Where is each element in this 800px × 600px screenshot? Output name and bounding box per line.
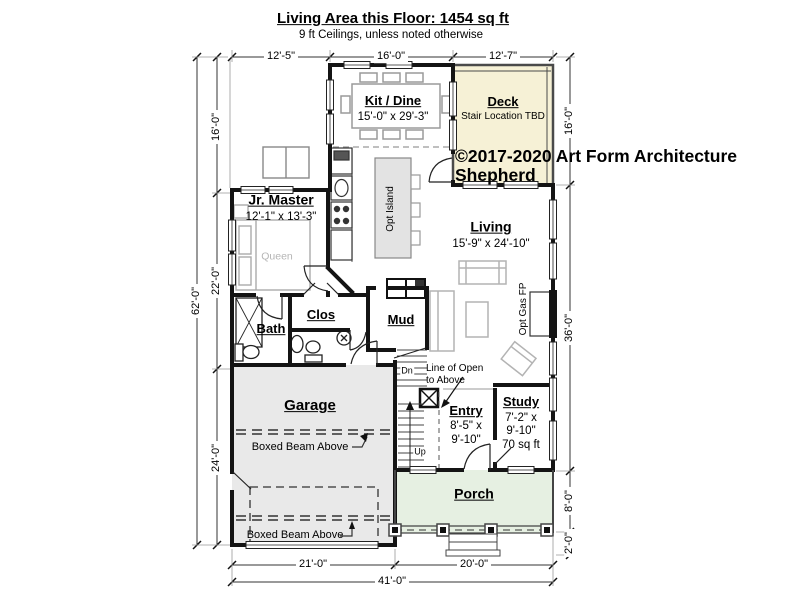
- opt-island-label: Opt Island: [386, 186, 397, 232]
- dim-top-1: 12'-5": [264, 51, 298, 63]
- queen-bed-label: Queen: [261, 251, 293, 262]
- cabinet: [331, 230, 352, 260]
- garage-entry-door: [351, 341, 377, 364]
- deck-door: [429, 158, 452, 182]
- dim-right-3: 8'-0": [564, 487, 576, 515]
- loveseat: [430, 291, 454, 351]
- toilet2-bowl: [306, 341, 320, 353]
- room-label-kit-dine: Kit / Dine: [362, 94, 424, 108]
- room-dims-entry-2: 9'-10": [451, 434, 480, 446]
- floor-plan-canvas: Living Area this Floor: 1454 sq ft 9 ft …: [0, 0, 800, 600]
- dim-left-2: 22'-0": [211, 264, 223, 298]
- room-dims-jr-master: 12'-1" x 13'-3": [246, 211, 317, 223]
- porch-steps: [449, 534, 497, 542]
- room-label-study: Study: [503, 395, 539, 409]
- fridge-top: [334, 151, 349, 160]
- fireplace: [530, 290, 557, 338]
- powder-sink: [291, 336, 303, 353]
- kitchen-fixtures: [331, 148, 420, 262]
- deck-note: Stair Location TBD: [461, 112, 545, 123]
- copyright-line2: Shepherd: [455, 166, 536, 185]
- room-dims-living: 15'-9" x 24'-10": [452, 238, 529, 250]
- stair-up-label: Up: [413, 447, 427, 456]
- powder-door: [350, 332, 366, 350]
- room-dims-study-2: 9'-10": [506, 425, 535, 437]
- room-label-garage: Garage: [284, 398, 336, 414]
- dim-bottom-overall: 41'-0": [375, 576, 409, 588]
- room-label-porch: Porch: [454, 487, 494, 502]
- garage-fill: [232, 365, 395, 545]
- ceiling-note: 9 ft Ceilings, unless noted otherwise: [299, 29, 483, 41]
- room-label-clos: Clos: [307, 308, 335, 322]
- room-label-entry: Entry: [449, 404, 482, 418]
- page-title: Living Area this Floor: 1454 sq ft: [277, 11, 509, 27]
- dim-left-overall: 62'-0": [191, 284, 203, 318]
- dim-top-2: 16'-0": [374, 51, 408, 63]
- toilet-bowl: [243, 346, 259, 359]
- toilet2-tank: [305, 355, 322, 362]
- accent-chair: [501, 342, 536, 376]
- boxed-beam-label-1: Boxed Beam Above: [252, 442, 349, 454]
- boxed-beam-label-2: Boxed Beam Above: [247, 530, 344, 542]
- dim-bottom-2: 20'-0": [457, 559, 491, 571]
- up-arrowhead: [406, 401, 414, 410]
- coffee-table: [466, 302, 488, 337]
- copyright-line1: ©2017-2020 Art Form Architecture: [455, 147, 737, 166]
- opt-gas-fp-label: Opt Gas FP: [519, 283, 530, 336]
- line-of-open-label-1: Line of Open: [426, 364, 483, 375]
- room-label-mud: Mud: [388, 313, 415, 327]
- room-dims-kit-dine: 15'-0" x 29'-3": [355, 111, 432, 123]
- dim-bottom-1: 21'-0": [296, 559, 330, 571]
- dim-right-4: 2'-0": [564, 529, 576, 557]
- dim-left-3: 24'-0": [211, 441, 223, 475]
- line-of-open-label-2: to Above: [426, 376, 465, 387]
- wardrobe: [263, 147, 309, 178]
- room-label-living: Living: [470, 220, 511, 235]
- floor-plan-drawing: [0, 0, 800, 600]
- room-label-deck: Deck: [487, 95, 518, 109]
- room-label-jr-master: Jr. Master: [248, 193, 313, 208]
- toilet-tank: [235, 344, 243, 361]
- room-dims-entry-1: 8'-5" x: [450, 420, 482, 432]
- room-label-bath: Bath: [257, 322, 286, 336]
- range: [331, 202, 352, 228]
- dim-top-3: 12'-7": [486, 51, 520, 63]
- study-area-label: 70 sq ft: [502, 439, 540, 451]
- stair-dn-label: Dn: [400, 366, 414, 375]
- room-dims-study-1: 7'-2" x: [505, 412, 537, 424]
- dim-right-2: 36'-0": [564, 311, 576, 345]
- dim-left-1: 16'-0": [211, 110, 223, 144]
- dim-right-1: 16'-0": [564, 104, 576, 138]
- front-door: [464, 444, 490, 469]
